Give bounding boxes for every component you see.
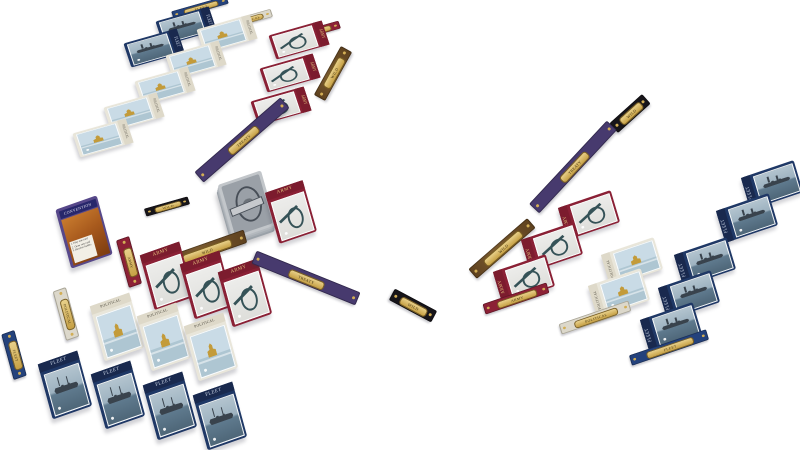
strip-label: WILD (154, 200, 183, 213)
political-card[interactable]: POLITICAL (72, 118, 133, 157)
fleet-card[interactable]: FLEET (91, 361, 146, 430)
army-card[interactable]: ARMY (259, 53, 320, 92)
cannon-art (262, 58, 309, 90)
wild-strip[interactable]: WILD (609, 94, 650, 133)
strip-label: WILD (482, 230, 524, 268)
strip-label: POLITICAL (574, 307, 619, 329)
corner-pip (162, 427, 166, 431)
strip-label: TREATY (288, 268, 326, 290)
fleet-card[interactable]: FLEET (193, 382, 248, 450)
corner-pip (156, 358, 160, 362)
cannon-art (271, 25, 318, 57)
strip-label: ARMY (122, 246, 138, 278)
cannon-art (270, 191, 314, 241)
strip-label: POLITICAL (59, 298, 76, 331)
strip-label: WILD (322, 56, 347, 90)
fleet-card[interactable]: FLEET (38, 351, 93, 420)
strip-label: WILD (398, 296, 428, 318)
battleship-art (727, 196, 775, 237)
corner-pip (199, 306, 203, 310)
corner-pip (57, 406, 61, 410)
corner-pip (203, 368, 207, 372)
corner-pip (159, 297, 163, 301)
corner-pip (212, 437, 216, 441)
political-card[interactable]: POLITICAL (184, 313, 239, 382)
cannon-art (569, 193, 617, 234)
reference-card[interactable]: CONVENTION 1. Play one card 2. Draw one … (55, 195, 112, 268)
corner-pip (85, 148, 88, 151)
palace-art (95, 304, 141, 358)
army-card[interactable]: ARMY (268, 20, 329, 59)
fleet-card[interactable]: FLEET (143, 372, 198, 441)
political-card[interactable]: POLITICAL (137, 303, 192, 372)
strip-label: TREATY (558, 150, 590, 184)
corner-pip (110, 416, 114, 420)
deck-crest-art (221, 174, 273, 236)
political-card[interactable]: POLITICAL (90, 293, 145, 362)
treaty-strip[interactable]: TREATY (194, 97, 289, 182)
palace-art (189, 324, 235, 378)
strip-label: WILD (618, 101, 644, 126)
game-table: FLEET FLEET FLEET POLITICAL POLITICAL PO… (0, 0, 800, 450)
army-strip[interactable]: ARMY (116, 236, 142, 288)
corner-pip (109, 348, 113, 352)
corner-pip (738, 228, 742, 231)
corner-pip (272, 83, 275, 86)
battleship-art (43, 362, 89, 416)
battleship-art (96, 372, 142, 426)
corner-pip (284, 231, 288, 235)
battleship-art (148, 383, 194, 437)
political-strip[interactable]: POLITICAL (53, 287, 80, 341)
palace-art (142, 314, 188, 368)
fleet-card[interactable]: FLEET (716, 193, 778, 243)
played-army-card[interactable]: ARMY (265, 180, 317, 244)
strip-label: TREATY (226, 124, 260, 156)
corner-pip (136, 58, 139, 61)
corner-pip (662, 337, 666, 340)
corner-pip (281, 50, 284, 53)
fleet-strip[interactable]: FLEET (1, 330, 27, 380)
battleship-art (198, 393, 244, 447)
reference-card-text: 1. Play one card 2. Draw one card 3. Res… (69, 234, 97, 263)
strip-label: FLEET (7, 340, 23, 371)
corner-pip (237, 314, 241, 318)
corner-pip (580, 225, 584, 228)
cannon-art (223, 270, 269, 324)
palace-art (75, 123, 122, 155)
wild-strip[interactable]: WILD (389, 288, 437, 322)
wild-strip[interactable]: WILD (144, 196, 190, 216)
